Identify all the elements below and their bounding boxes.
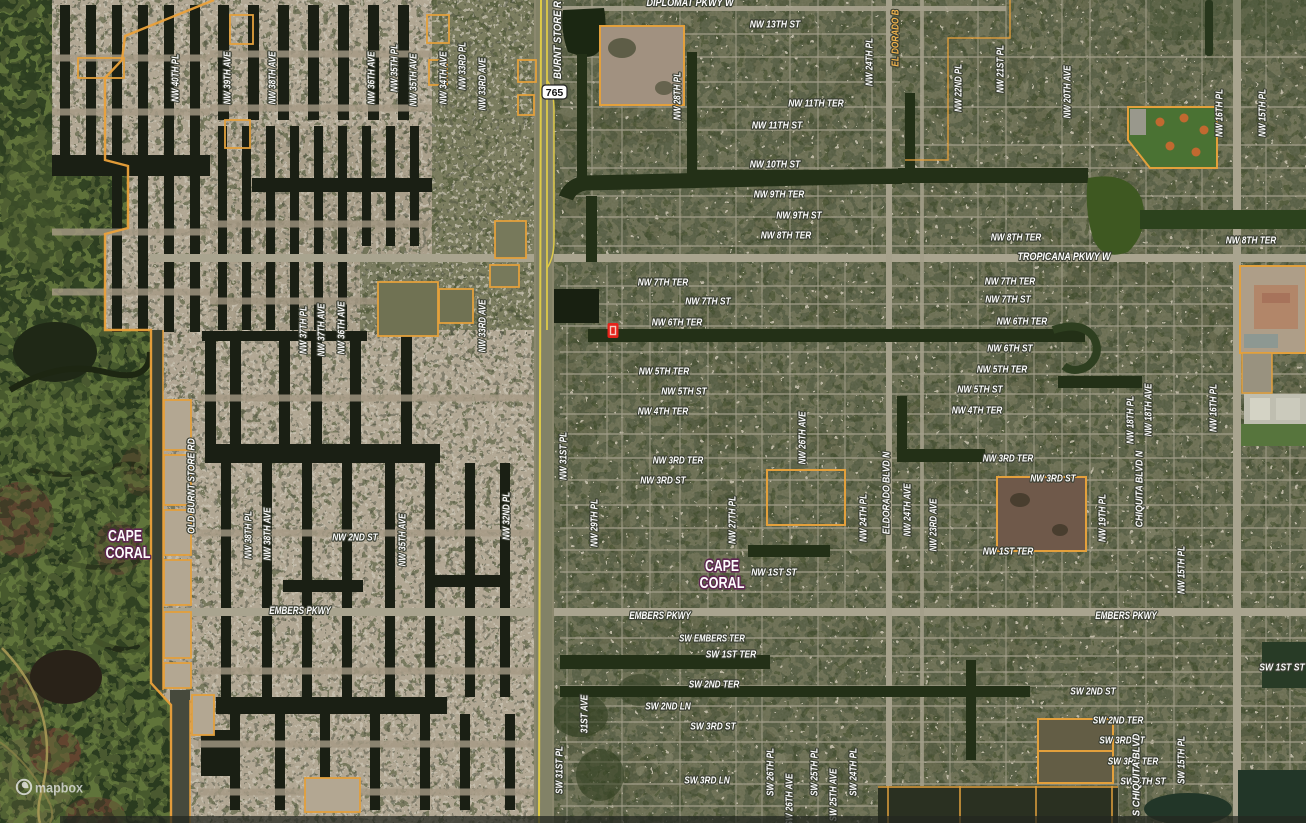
svg-text:NW 3RD ST: NW 3RD ST xyxy=(1030,473,1077,485)
svg-text:NW 29TH PL: NW 29TH PL xyxy=(590,499,601,547)
svg-text:NW 9TH TER: NW 9TH TER xyxy=(754,189,805,201)
svg-text:NW 36TH AVE: NW 36TH AVE xyxy=(367,51,378,105)
svg-text:NW 16TH PL: NW 16TH PL xyxy=(1209,384,1220,432)
svg-text:NW 9TH ST: NW 9TH ST xyxy=(776,210,823,222)
svg-text:NW 5TH TER: NW 5TH TER xyxy=(639,366,690,378)
svg-text:NW 2ND ST: NW 2ND ST xyxy=(332,532,379,544)
svg-text:NW 8TH TER: NW 8TH TER xyxy=(1226,235,1277,247)
svg-text:SW 1ST TER: SW 1ST TER xyxy=(706,649,757,661)
svg-text:NW 5TH ST: NW 5TH ST xyxy=(661,386,708,398)
svg-text:CAPE: CAPE xyxy=(108,528,142,545)
svg-text:SW 26TH AVE: SW 26TH AVE xyxy=(785,773,796,823)
svg-text:NW 19TH PL: NW 19TH PL xyxy=(1098,494,1109,542)
svg-text:SW 4TH ST: SW 4TH ST xyxy=(1120,776,1167,788)
svg-text:SW 2ND LN: SW 2ND LN xyxy=(645,701,691,713)
svg-text:NW 13TH ST: NW 13TH ST xyxy=(750,20,802,31)
svg-text:NW 3RD TER: NW 3RD TER xyxy=(653,455,704,467)
svg-text:SW 25TH AVE: SW 25TH AVE xyxy=(829,768,840,822)
svg-text:NW 18TH PL: NW 18TH PL xyxy=(1126,396,1137,444)
svg-text:SW 3RD ST: SW 3RD ST xyxy=(690,721,737,733)
svg-text:NW 33RD PL: NW 33RD PL xyxy=(458,42,469,90)
svg-text:OLD BURNT STORE RD: OLD BURNT STORE RD xyxy=(187,438,198,533)
svg-text:CHIQUITA BLVD N: CHIQUITA BLVD N xyxy=(1135,450,1146,527)
svg-text:NW 37TH PL: NW 37TH PL xyxy=(299,306,310,354)
svg-text:SW 2ND TER: SW 2ND TER xyxy=(1093,715,1144,727)
svg-text:SW 2ND ST: SW 2ND ST xyxy=(1070,686,1117,698)
svg-text:NW 4TH TER: NW 4TH TER xyxy=(952,405,1003,417)
svg-text:EL DORADO B: EL DORADO B xyxy=(891,9,902,67)
svg-text:NW 3RD ST: NW 3RD ST xyxy=(640,475,687,487)
svg-text:NW 32ND PL: NW 32ND PL xyxy=(502,492,513,540)
svg-text:NW 39TH AVE: NW 39TH AVE xyxy=(223,51,234,105)
svg-text:CAPE: CAPE xyxy=(705,558,739,575)
svg-text:SW 2ND TER: SW 2ND TER xyxy=(689,679,740,691)
svg-text:mapbox: mapbox xyxy=(35,781,83,796)
svg-text:NW 1ST ST: NW 1ST ST xyxy=(751,567,798,579)
svg-text:BURNT STORE R: BURNT STORE R xyxy=(552,1,564,79)
svg-text:NW 4TH TER: NW 4TH TER xyxy=(638,406,689,418)
svg-text:NW 35TH PL: NW 35TH PL xyxy=(390,44,401,92)
svg-text:TROPICANA PKWY W: TROPICANA PKWY W xyxy=(1018,251,1111,263)
svg-text:NW 11TH ST: NW 11TH ST xyxy=(752,120,804,132)
svg-text:NW 38TH AVE: NW 38TH AVE xyxy=(263,507,274,561)
svg-text:NW 21ST PL: NW 21ST PL xyxy=(996,45,1007,93)
svg-text:NW 6TH TER: NW 6TH TER xyxy=(997,316,1048,328)
svg-text:NW 24TH PL: NW 24TH PL xyxy=(859,494,870,542)
svg-text:DIPLOMAT PKWY W: DIPLOMAT PKWY W xyxy=(647,0,735,9)
svg-text:CORAL: CORAL xyxy=(700,575,745,592)
svg-text:NW 7TH TER: NW 7TH TER xyxy=(985,276,1036,288)
svg-text:NW 3RD TER: NW 3RD TER xyxy=(983,453,1034,465)
svg-text:NW 18TH AVE: NW 18TH AVE xyxy=(1144,383,1155,437)
svg-text:NW 40TH PL: NW 40TH PL xyxy=(171,54,182,102)
svg-text:NW 22ND PL: NW 22ND PL xyxy=(954,64,965,112)
svg-text:NW 35TH AVE: NW 35TH AVE xyxy=(398,513,409,567)
svg-text:NW 24TH PL: NW 24TH PL xyxy=(865,38,876,86)
svg-text:NW 20TH AVE: NW 20TH AVE xyxy=(1063,65,1074,119)
svg-text:NW 33RD AVE: NW 33RD AVE xyxy=(478,299,489,353)
svg-text:NW 16TH PL: NW 16TH PL xyxy=(1215,89,1226,137)
svg-text:CORAL: CORAL xyxy=(106,545,151,562)
svg-text:SW 31ST PL: SW 31ST PL xyxy=(555,746,566,794)
svg-text:NW 5TH ST: NW 5TH ST xyxy=(957,384,1004,396)
svg-text:NW 7TH ST: NW 7TH ST xyxy=(985,294,1032,306)
svg-text:NW 8TH TER: NW 8TH TER xyxy=(761,230,812,242)
svg-text:NW 37TH AVE: NW 37TH AVE xyxy=(317,303,328,357)
svg-text:NW 11TH TER: NW 11TH TER xyxy=(788,98,844,110)
svg-text:SW 24TH PL: SW 24TH PL xyxy=(849,748,860,796)
svg-text:NW 23RD AVE: NW 23RD AVE xyxy=(929,498,940,552)
svg-text:NW 6TH TER: NW 6TH TER xyxy=(652,317,703,329)
svg-text:SW 25TH PL: SW 25TH PL xyxy=(810,748,821,796)
svg-text:NW 15TH PL: NW 15TH PL xyxy=(1177,546,1188,594)
svg-text:NW 33RD AVE: NW 33RD AVE xyxy=(478,57,489,111)
svg-text:EMBERS PKWY: EMBERS PKWY xyxy=(269,605,332,617)
svg-text:NW 8TH TER: NW 8TH TER xyxy=(991,232,1042,244)
svg-text:NW 24TH AVE: NW 24TH AVE xyxy=(903,483,914,537)
svg-text:ELDORADO BLVD N: ELDORADO BLVD N xyxy=(882,451,893,534)
svg-text:NW 27TH PL: NW 27TH PL xyxy=(728,496,739,544)
svg-text:765: 765 xyxy=(546,87,564,99)
svg-text:NW 1ST TER: NW 1ST TER xyxy=(983,546,1034,558)
svg-text:SW 3RD LN: SW 3RD LN xyxy=(684,775,730,787)
svg-text:NW 26TH AVE: NW 26TH AVE xyxy=(798,411,809,465)
svg-text:31ST AVE: 31ST AVE xyxy=(580,694,591,733)
svg-text:NW 15TH PL: NW 15TH PL xyxy=(1258,89,1269,137)
svg-text:NW 28TH PL: NW 28TH PL xyxy=(673,72,684,120)
svg-text:NW 31ST PL: NW 31ST PL xyxy=(559,432,570,480)
svg-text:SW 26TH PL: SW 26TH PL xyxy=(766,748,777,796)
svg-text:NW 7TH ST: NW 7TH ST xyxy=(685,296,732,308)
svg-text:NW 6TH ST: NW 6TH ST xyxy=(987,343,1034,355)
svg-text:SW 1ST ST: SW 1ST ST xyxy=(1259,662,1306,674)
svg-text:NW 38TH PL: NW 38TH PL xyxy=(244,511,255,559)
svg-text:NW 10TH ST: NW 10TH ST xyxy=(750,159,802,171)
svg-text:NW 7TH TER: NW 7TH TER xyxy=(638,277,689,289)
svg-text:NW 34TH AVE: NW 34TH AVE xyxy=(439,51,450,105)
svg-text:NW 35TH AVE: NW 35TH AVE xyxy=(409,53,420,107)
svg-text:SW EMBERS TER: SW EMBERS TER xyxy=(679,633,745,645)
svg-text:SW 15TH PL: SW 15TH PL xyxy=(1177,736,1188,784)
svg-text:NW 5TH TER: NW 5TH TER xyxy=(977,364,1028,376)
svg-text:EMBERS PKWY: EMBERS PKWY xyxy=(629,610,692,622)
svg-text:NW 38TH AVE: NW 38TH AVE xyxy=(268,51,279,105)
svg-text:EMBERS PKWY: EMBERS PKWY xyxy=(1095,610,1158,622)
svg-text:S CHIQUITA BLVD: S CHIQUITA BLVD xyxy=(1132,733,1143,816)
svg-text:NW 36TH AVE: NW 36TH AVE xyxy=(337,301,348,355)
